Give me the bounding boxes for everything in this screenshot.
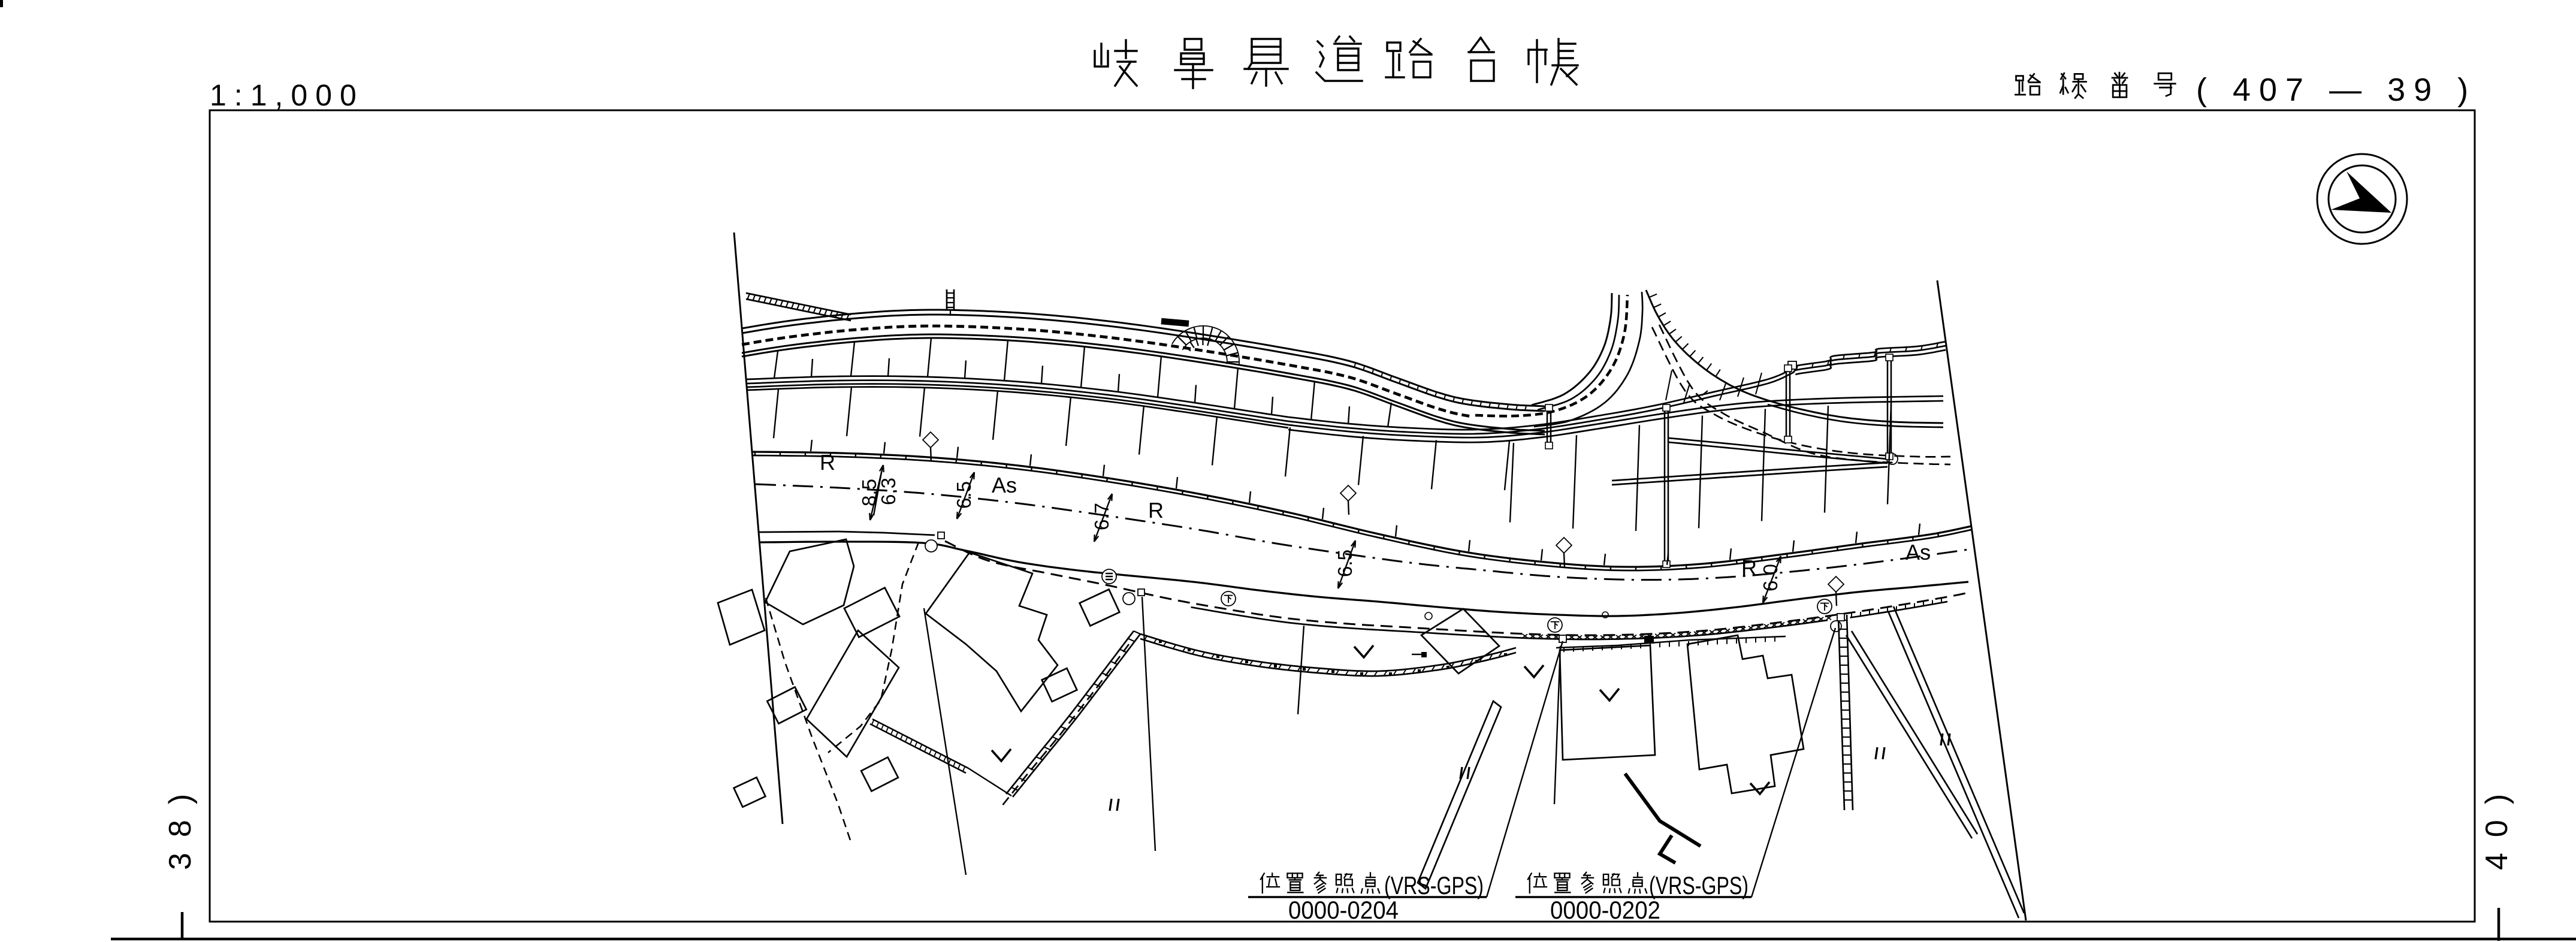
svg-text:R: R xyxy=(1148,498,1164,523)
svg-text:As: As xyxy=(992,473,1017,497)
svg-text:6.7: 6.7 xyxy=(1091,503,1113,530)
svg-text:6.5: 6.5 xyxy=(1334,549,1356,577)
svg-text:0000-0204: 0000-0204 xyxy=(1288,896,1399,924)
svg-text:0000-0202: 0000-0202 xyxy=(1550,896,1660,924)
svg-text:6.5: 6.5 xyxy=(953,481,975,509)
svg-text:R: R xyxy=(820,450,835,475)
svg-text:R: R xyxy=(1741,555,1757,580)
svg-text:(VRS-GPS): (VRS-GPS) xyxy=(1384,871,1484,899)
svg-text:( 407 — 39 ): ( 407 — 39 ) xyxy=(2196,72,2477,108)
svg-text:(VRS-GPS): (VRS-GPS) xyxy=(1649,871,1748,899)
svg-text:6.0: 6.0 xyxy=(1759,564,1781,591)
svg-text:1:1,000: 1:1,000 xyxy=(210,78,364,112)
svg-text:6.3: 6.3 xyxy=(877,478,899,505)
svg-text:38): 38) xyxy=(163,778,198,870)
svg-text:As: As xyxy=(1905,540,1931,564)
svg-text:40): 40) xyxy=(2480,778,2514,870)
